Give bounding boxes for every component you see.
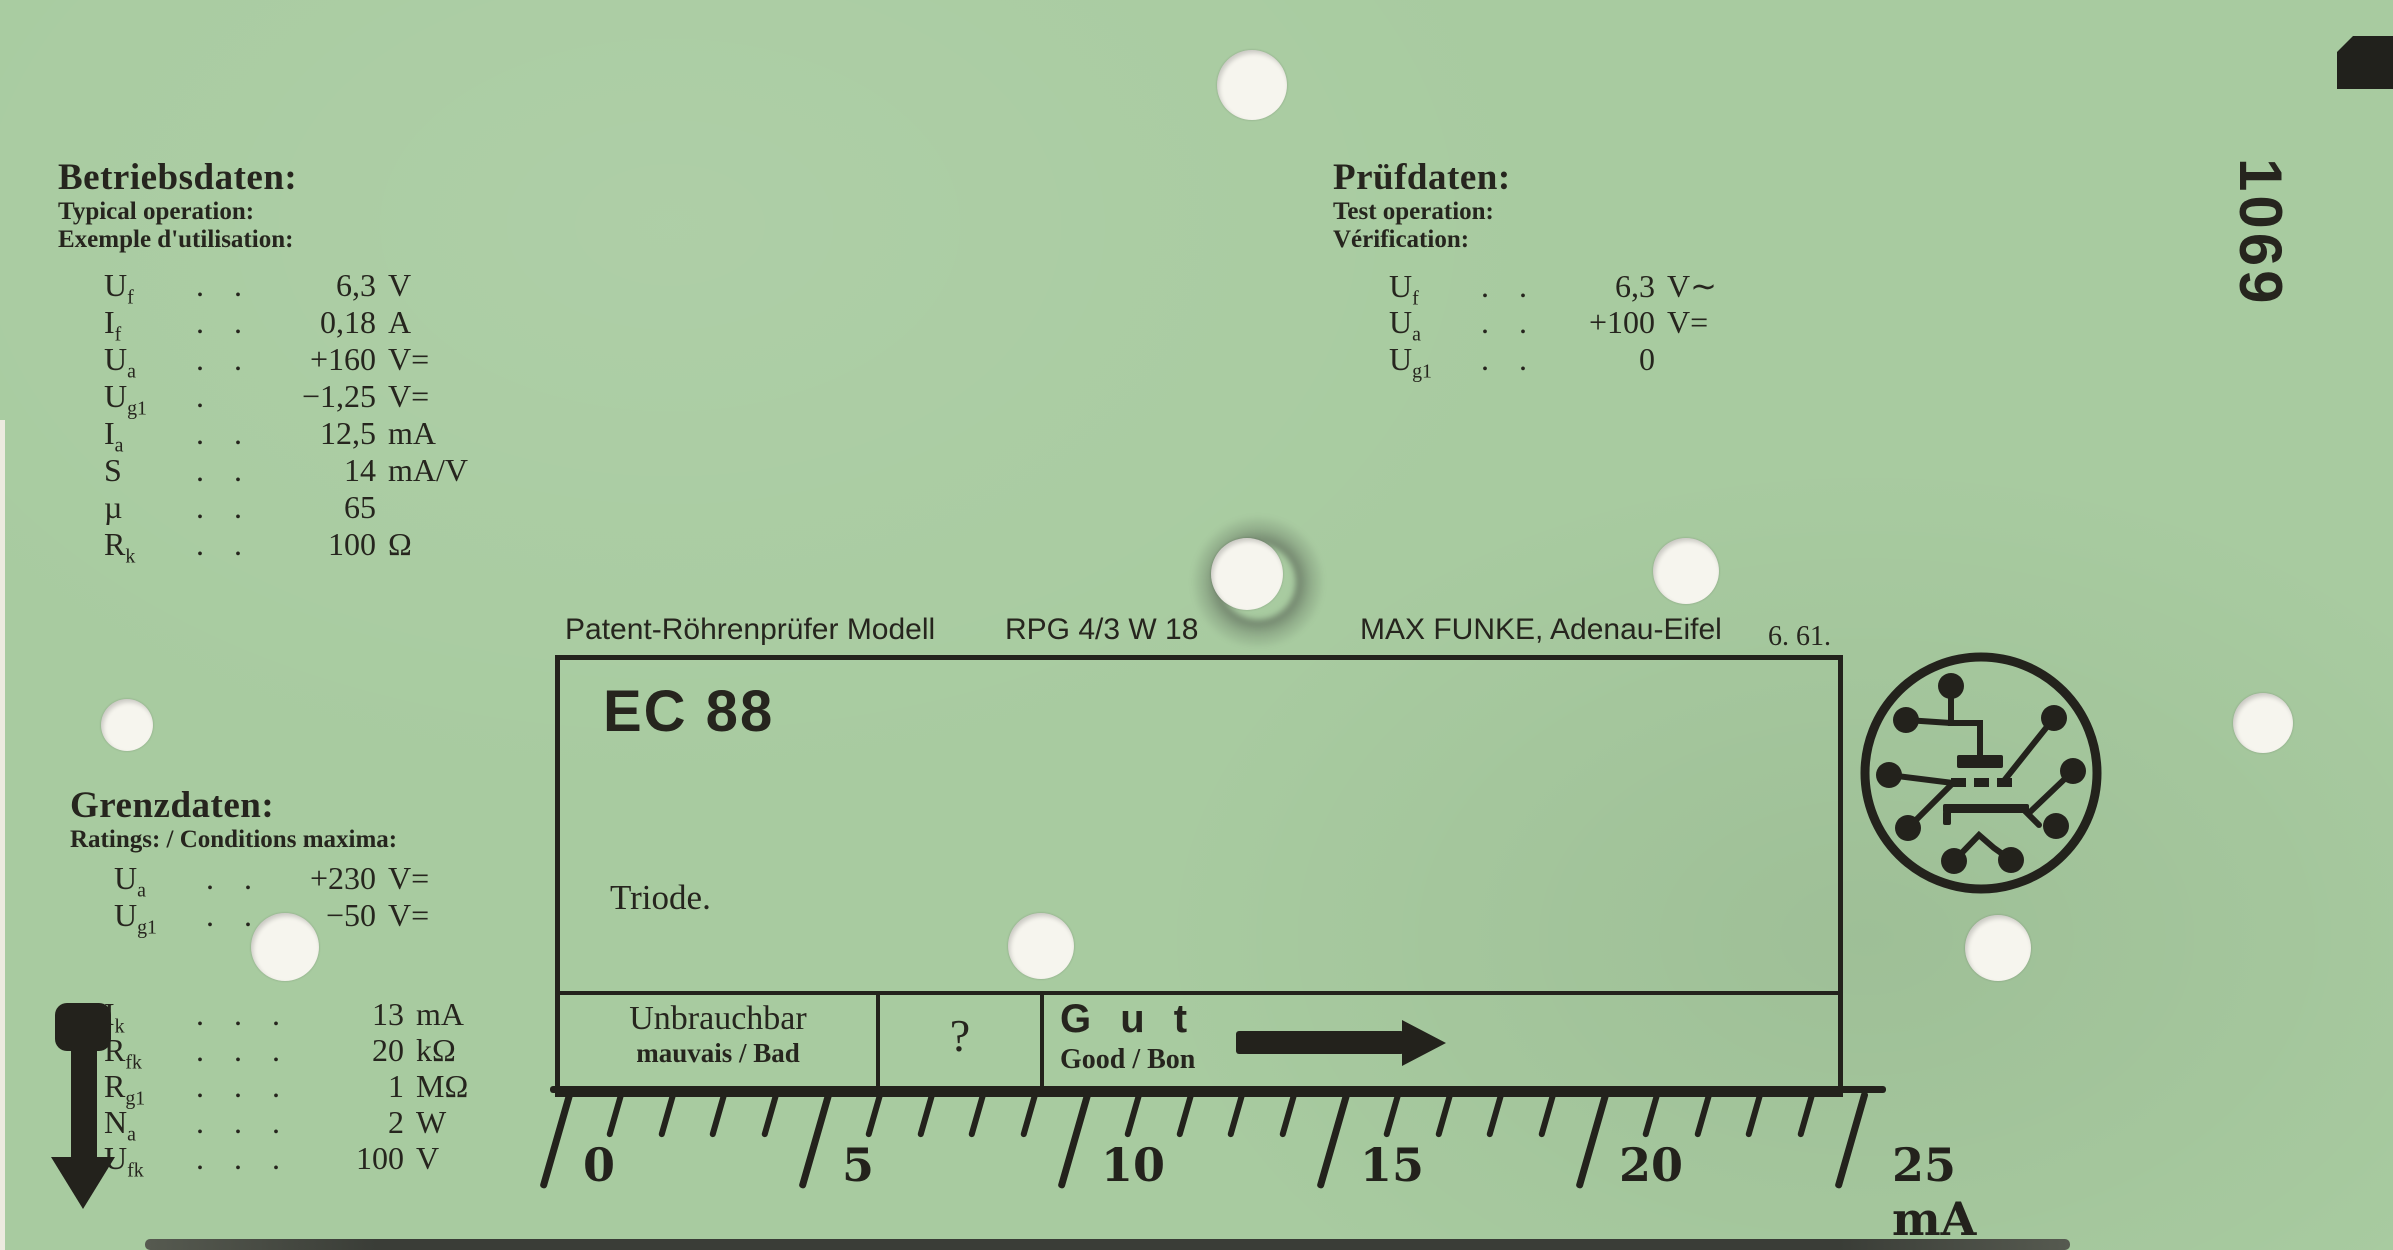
verdict-good-title: G u t: [1060, 997, 1838, 1042]
param-unit: A: [376, 304, 506, 341]
betriebsdaten-rows: Uf. . . .6,3VIf. . . .0,18AUa. . .+160V=…: [104, 267, 506, 563]
param-unit: V∼: [1655, 267, 1785, 305]
betriebsdaten-block: Betriebsdaten: Typical operation: Exempl…: [58, 158, 518, 563]
param-unit: V=: [376, 897, 506, 934]
dot-leaders: . .: [190, 452, 258, 489]
scan-edge-shadow: [145, 1239, 2070, 1250]
punch-hole: [1008, 913, 1074, 979]
header-maker: MAX FUNKE, Adenau-Eifel: [1360, 613, 1722, 647]
param-value: +100: [1537, 304, 1655, 341]
param-value: 100: [258, 526, 376, 563]
param-value: 0: [1537, 341, 1655, 378]
meter-scale: 0510152025 mA: [540, 1086, 1960, 1250]
scale-tick: [1020, 1091, 1039, 1138]
data-row: Ufk. . . .100V: [104, 1140, 534, 1176]
verdict-question-cell: ?: [880, 995, 1044, 1092]
param-symbol: Ug1: [1389, 341, 1475, 383]
param-subscript: k: [125, 545, 135, 567]
data-row: Ua. . .+230V=: [114, 860, 506, 897]
param-value: 65: [258, 489, 376, 526]
down-arrow-icon: [45, 995, 125, 1215]
good-direction-arrow-head: [1402, 1020, 1446, 1066]
data-row: S. .14mA/V: [104, 452, 506, 489]
param-symbol: Ug1: [114, 897, 200, 939]
data-row: Ia. . . .12,5mA: [104, 415, 506, 452]
betriebsdaten-subtitle-en: Typical operation:: [58, 198, 518, 227]
scale-tick: [1797, 1091, 1816, 1138]
meter-scale-baseline: [550, 1086, 1886, 1093]
data-row: Na. . . . .2W: [104, 1104, 534, 1140]
pruefdaten-subtitle-fr: Vérification:: [1333, 226, 1793, 255]
param-value: 12,5: [258, 415, 376, 452]
scale-tick: [968, 1091, 987, 1138]
scale-tick: [1176, 1091, 1195, 1138]
data-row: If. . . .0,18A: [104, 304, 506, 341]
scale-tick: [658, 1091, 677, 1138]
tube-info-box: EC 88 Triode. Unbrauchbar mauvais / Bad …: [555, 655, 1843, 1097]
data-row: Uf. . . .6,3V∼: [1389, 267, 1785, 304]
param-unit: V=: [376, 341, 506, 378]
dot-leaders: . . . . .: [190, 1068, 286, 1105]
dot-leaders: . . . .: [190, 1032, 286, 1069]
pruefdaten-rows: Uf. . . .6,3V∼Ua. . .+100V=Ug1. . . .0: [1389, 267, 1785, 378]
header-date: 6. 61.: [1768, 621, 1831, 653]
header-model-number: RPG 4/3 W 18: [1005, 613, 1198, 647]
pruefdaten-title: Prüfdaten:: [1333, 158, 1793, 198]
data-row: Rk. . . .100Ω: [104, 526, 506, 563]
scale-tick: [1383, 1091, 1402, 1138]
betriebsdaten-subtitle-fr: Exemple d'utilisation:: [58, 226, 518, 255]
param-value: 6,3: [1537, 268, 1655, 305]
grenzdaten-block: Grenzdaten: Ratings: / Conditions maxima…: [70, 786, 550, 934]
dot-leaders: . . .: [190, 341, 258, 378]
betriebsdaten-title: Betriebsdaten:: [58, 158, 518, 198]
dot-leaders: . . . .: [1475, 268, 1537, 305]
param-unit: V: [376, 267, 506, 304]
punch-hole: [251, 913, 319, 981]
scale-tick: [1486, 1091, 1505, 1138]
param-symbol: Rk: [104, 526, 190, 568]
scale-label: 0: [583, 1138, 615, 1192]
verdict-good-subtitle: Good / Bon: [1060, 1044, 1838, 1076]
param-unit: Ω: [376, 526, 506, 563]
param-unit: V: [404, 1140, 534, 1177]
tube-name: EC 88: [603, 678, 774, 745]
scale-tick: [1279, 1091, 1298, 1138]
serial-number: 1069: [2226, 158, 2295, 348]
limits-block: Ik. . . . .13mARfk. . . .20kΩRg1. . . . …: [104, 996, 534, 1176]
punch-hole: [1965, 915, 2031, 981]
param-value: 100: [286, 1140, 404, 1177]
param-value: 0,18: [258, 304, 376, 341]
scale-tick: [1227, 1091, 1246, 1138]
dot-leaders: . . . . .: [190, 996, 286, 1033]
param-unit: V=: [376, 378, 506, 415]
scale-tick: [606, 1091, 625, 1138]
pruefdaten-subtitle-en: Test operation:: [1333, 198, 1793, 227]
tube-test-card: Betriebsdaten: Typical operation: Exempl…: [0, 0, 2393, 1250]
param-value: 2: [286, 1104, 404, 1141]
grenzdaten-title: Grenzdaten:: [70, 786, 550, 826]
dot-leaders: . . . . .: [190, 1104, 286, 1141]
param-unit: V=: [1655, 304, 1785, 341]
verdict-row: Unbrauchbar mauvais / Bad ? G u t Good /…: [560, 991, 1838, 1092]
param-unit: mA/V: [376, 452, 506, 489]
pruefdaten-block: Prüfdaten: Test operation: Vérification:…: [1333, 158, 1793, 378]
header-device-name: Patent-Röhrenprüfer Modell: [565, 613, 935, 647]
data-row: Ug1.−1,25V=: [104, 378, 506, 415]
scale-label: 20: [1619, 1138, 1683, 1192]
scale-tick: [1538, 1091, 1557, 1138]
scale-tick: [1575, 1091, 1609, 1189]
param-symbol: S: [104, 452, 190, 489]
scale-tick: [865, 1091, 884, 1138]
dot-leaders: . . . .: [190, 267, 258, 304]
dot-leaders: . . . .: [190, 415, 258, 452]
scale-label: 10: [1101, 1138, 1165, 1192]
corner-index-tab: [2337, 36, 2393, 89]
param-subscript: g1: [1412, 360, 1432, 382]
dot-leaders: . . . .: [190, 526, 258, 563]
param-unit: W: [404, 1104, 534, 1141]
scale-tick: [1435, 1091, 1454, 1138]
limits-rows: Ik. . . . .13mARfk. . . .20kΩRg1. . . . …: [104, 996, 534, 1176]
param-unit: MΩ: [404, 1068, 534, 1105]
data-row: Uf. . . .6,3V: [104, 267, 506, 304]
scale-tick: [1124, 1091, 1143, 1138]
verdict-bad-subtitle: mauvais / Bad: [560, 1038, 876, 1069]
verdict-bad-title: Unbrauchbar: [560, 1000, 876, 1038]
dot-leaders: . . .: [1475, 304, 1537, 341]
param-subscript: fk: [127, 1159, 144, 1181]
scale-tick: [1745, 1091, 1764, 1138]
param-value: 20: [286, 1032, 404, 1069]
dot-leaders: . . . .: [190, 1140, 286, 1177]
dot-leaders: . . . .: [1475, 341, 1537, 378]
param-value: 1: [286, 1068, 404, 1105]
param-unit: V=: [376, 860, 506, 897]
param-unit: kΩ: [404, 1032, 534, 1069]
scale-end-label: 25 mA: [1892, 1138, 1976, 1246]
param-value: 6,3: [258, 267, 376, 304]
punch-hole: [2233, 693, 2293, 753]
tube-socket-diagram-icon: [1853, 645, 2115, 907]
data-row: Rg1. . . . .1MΩ: [104, 1068, 534, 1104]
scale-label: 5: [842, 1138, 874, 1192]
scale-tick: [917, 1091, 936, 1138]
scale-tick: [1316, 1091, 1350, 1189]
punch-hole: [1211, 538, 1283, 610]
scale-tick: [709, 1091, 728, 1138]
punch-hole: [101, 699, 153, 751]
scale-tick: [1057, 1091, 1091, 1189]
param-value: 13: [286, 996, 404, 1033]
data-row: Ug1. . . .0: [1389, 341, 1785, 378]
scale-tick: [1642, 1091, 1661, 1138]
param-subscript: g1: [137, 917, 157, 939]
param-unit: mA: [376, 415, 506, 452]
dot-leaders: . . . . .: [190, 489, 258, 526]
dot-leaders: . . .: [200, 860, 258, 897]
dot-leaders: . . .: [200, 897, 258, 934]
data-row: Ik. . . . .13mA: [104, 996, 534, 1032]
punch-hole: [1653, 538, 1719, 604]
param-value: 14: [258, 452, 376, 489]
verdict-good-cell: G u t Good / Bon: [1044, 995, 1838, 1092]
param-value: +160: [258, 341, 376, 378]
param-unit: mA: [404, 996, 534, 1033]
param-symbol: µ: [104, 489, 190, 526]
scale-label: 15: [1360, 1138, 1424, 1192]
param-value: −1,25: [258, 378, 376, 415]
scale-tick: [1694, 1091, 1713, 1138]
data-row: Rfk. . . .20kΩ: [104, 1032, 534, 1068]
verdict-bad-cell: Unbrauchbar mauvais / Bad: [560, 995, 880, 1092]
grenzdaten-subtitle: Ratings: / Conditions maxima:: [70, 826, 550, 855]
dot-leaders: . . . .: [190, 304, 258, 341]
scale-tick: [1834, 1091, 1868, 1189]
scale-tick: [761, 1091, 780, 1138]
punch-hole: [1217, 50, 1287, 120]
param-value: +230: [258, 860, 376, 897]
data-row: Ua. . .+160V=: [104, 341, 506, 378]
data-row: µ. . . . .65: [104, 489, 506, 526]
dot-leaders: .: [190, 378, 258, 415]
good-direction-arrow: [1236, 1031, 1404, 1054]
scale-tick: [798, 1091, 832, 1189]
scan-edge-white: [0, 420, 5, 1250]
tube-type: Triode.: [610, 878, 711, 918]
scale-tick: [539, 1091, 573, 1189]
data-row: Ua. . .+100V=: [1389, 304, 1785, 341]
